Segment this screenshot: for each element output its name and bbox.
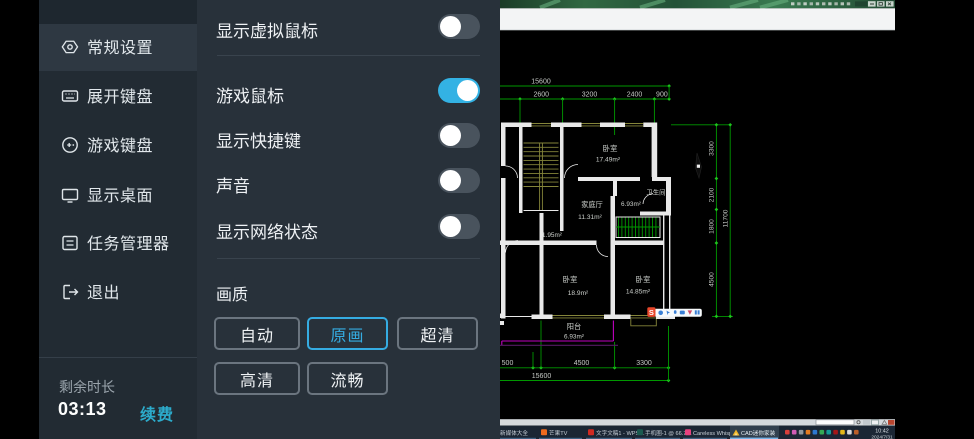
svg-text:3300: 3300 (709, 141, 716, 156)
svg-text:6.93m²: 6.93m² (621, 201, 641, 208)
svg-text:18.9m²: 18.9m² (568, 290, 589, 297)
svg-text:6.93m²: 6.93m² (564, 334, 584, 341)
svg-text:卫生间: 卫生间 (646, 188, 665, 197)
svg-text:家庭厅: 家庭厅 (581, 200, 603, 209)
svg-text:4500: 4500 (574, 360, 590, 367)
svg-text:3300: 3300 (636, 360, 652, 367)
svg-text:芒果TV: 芒果TV (549, 429, 568, 437)
svg-text:1.95m²: 1.95m² (542, 232, 562, 239)
svg-text:15600: 15600 (532, 373, 552, 380)
svg-text:2600: 2600 (534, 92, 550, 99)
svg-text:4500: 4500 (709, 272, 716, 287)
svg-text:14.85m²: 14.85m² (626, 289, 651, 296)
svg-text:900: 900 (656, 92, 668, 99)
svg-text:10:42: 10:42 (875, 428, 889, 434)
svg-text:2400: 2400 (627, 92, 643, 99)
svg-text:S: S (649, 308, 654, 317)
svg-text:阳台: 阳台 (567, 322, 581, 331)
svg-text:卧室: 卧室 (636, 274, 651, 284)
svg-text:2100: 2100 (709, 187, 716, 202)
svg-text:3200: 3200 (582, 92, 598, 99)
svg-text:卧室: 卧室 (603, 143, 618, 153)
svg-text:新媒体大全: 新媒体大全 (500, 429, 528, 437)
svg-text:11.31m²: 11.31m² (578, 214, 603, 221)
svg-text:500: 500 (502, 360, 514, 367)
svg-text:17.49m²: 17.49m² (596, 157, 621, 164)
svg-text:2024/7/31: 2024/7/31 (871, 434, 893, 439)
svg-text:15600: 15600 (531, 79, 551, 86)
svg-text:CAD迷你家装: CAD迷你家装 (741, 429, 776, 437)
svg-text:11700: 11700 (722, 209, 729, 227)
svg-text:手机圈-1 @ 66.7…: 手机圈-1 @ 66.7… (645, 429, 692, 437)
svg-text:卧室: 卧室 (563, 274, 578, 284)
svg-text:1800: 1800 (709, 219, 716, 234)
